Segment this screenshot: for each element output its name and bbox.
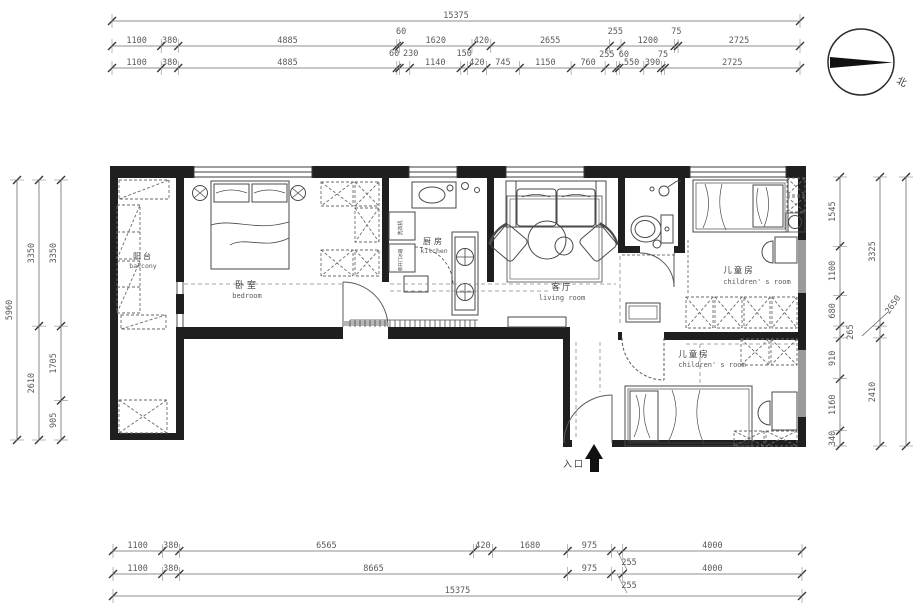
furniture-bedroom — [193, 181, 306, 269]
furniture-children-bottom — [625, 386, 797, 446]
dim-label: 420 — [474, 36, 489, 46]
dim-chain: 33502610 — [27, 176, 46, 444]
dim-label: 550 — [624, 58, 639, 68]
dim-label: 2410 — [868, 382, 878, 402]
dim-label: 3325 — [868, 241, 878, 261]
floor-plan-svg: 北 阳台 balcony 卧室 bedroom 厨房 kitchen 客厅 li… — [0, 0, 917, 610]
dim-label: 380 — [163, 541, 178, 551]
dim-label: 3350 — [49, 243, 59, 263]
furniture-bathroom — [622, 181, 681, 255]
balcony-label-en: balcony — [129, 262, 156, 270]
dim-label: 255 — [599, 50, 614, 60]
ceiling-lamp — [291, 186, 306, 201]
blanket-line — [668, 390, 704, 444]
entrance-arrow-icon — [585, 444, 603, 472]
dim-label: 4000 — [702, 541, 722, 551]
dim-label: 60 — [396, 27, 406, 37]
desk — [772, 392, 797, 430]
dim-label: 4000 — [702, 564, 722, 574]
dim-label: 1620 — [426, 36, 446, 46]
room-labels: 阳台 balcony 卧室 bedroom 厨房 kitchen 客厅 livi… — [129, 220, 790, 470]
faucet — [447, 185, 453, 191]
washer-label: 洗衣机 — [397, 220, 404, 235]
dim-label: 15375 — [445, 586, 471, 596]
sofa — [506, 181, 606, 227]
dim-label: 905 — [49, 413, 59, 428]
dim-label: 1100 — [126, 58, 146, 68]
dim-label: 760 — [580, 58, 595, 68]
dim-label: 1100 — [126, 36, 146, 46]
dim-label: 1140 — [425, 58, 445, 68]
north-compass: 北 — [828, 29, 909, 95]
dim-label: 975 — [582, 541, 597, 551]
wardrobe-box — [772, 297, 797, 328]
dim-label: 255 — [608, 27, 623, 37]
living-label-en: living room — [539, 294, 585, 302]
dim-label: 2655 — [540, 36, 560, 46]
dim-label: 1680 — [520, 541, 540, 551]
dim-label: 680 — [828, 303, 838, 318]
compass-needle — [830, 57, 893, 68]
dim-label: 380 — [162, 36, 177, 46]
windows — [194, 166, 806, 417]
dim-chain: 15375 — [109, 586, 806, 603]
chair — [758, 401, 770, 425]
bedroom-label-en: bedroom — [232, 292, 262, 300]
rug — [507, 196, 602, 282]
dim-label: 255 — [621, 581, 636, 591]
dim-label: 4885 — [277, 36, 297, 46]
living-label-zh: 客厅 — [551, 282, 572, 293]
dim-label: 910 — [828, 351, 838, 366]
children-top-label-en: children' s room — [723, 278, 790, 286]
dim-label: 8665 — [363, 564, 383, 574]
dim-label: 255 — [621, 558, 636, 568]
blanket-line — [211, 222, 289, 226]
dim-label: 380 — [163, 564, 178, 574]
shower-head — [650, 181, 681, 196]
wardrobe-box — [355, 182, 379, 206]
bedroom-label-zh: 卧室 — [235, 279, 259, 291]
wardrobe-box — [355, 250, 379, 276]
fridge-label: 单开门冰箱 — [397, 248, 404, 271]
dim-label: 60 — [389, 49, 399, 59]
dim-label: 1545 — [828, 201, 838, 221]
north-label: 北 — [894, 75, 908, 90]
doors — [343, 253, 674, 443]
hall-fixtures — [350, 303, 660, 327]
desk — [775, 237, 797, 263]
wardrobe-box — [321, 182, 353, 206]
dim-label: 1150 — [535, 58, 555, 68]
pillow — [252, 184, 287, 202]
dim-label: 3350 — [27, 243, 37, 263]
dim-label: 75 — [671, 27, 681, 37]
dim-label: 2725 — [729, 36, 749, 46]
kitchen-label-zh: 厨房 — [423, 236, 445, 246]
dim-label: 4885 — [277, 58, 297, 68]
dim-label: 340 — [828, 431, 838, 446]
dim-chain — [899, 173, 913, 450]
ceiling-lamp — [193, 186, 208, 201]
wardrobe-box — [321, 250, 353, 276]
dim-label: 1100 — [127, 564, 147, 574]
dim-chain: 5960 — [5, 176, 24, 444]
wardrobe-box — [744, 297, 770, 328]
burner — [457, 284, 474, 301]
stove-counter — [452, 232, 478, 315]
balcony-slider — [176, 282, 184, 327]
dim-label: 230 — [403, 49, 418, 59]
wardrobe-box — [355, 208, 379, 242]
wardrobe-box — [686, 297, 713, 328]
kitchen-label-en: kitchen — [420, 247, 447, 255]
balcony-label-zh: 阳台 — [133, 251, 153, 261]
entrance-label: 入口 — [563, 459, 585, 470]
entrance-door — [564, 395, 612, 443]
right-outer-leader-dim: 2650 — [862, 294, 903, 336]
dim-chain: 1100380488560230114015042074511507602556… — [108, 49, 804, 75]
toilet — [631, 215, 673, 248]
wardrobe-box — [741, 339, 769, 365]
window-bench — [508, 317, 566, 327]
dim-label: 2650 — [883, 294, 903, 317]
children-bottom-door — [622, 338, 664, 380]
dim-label: 1200 — [638, 36, 658, 46]
dim-label: 2725 — [722, 58, 742, 68]
dim-label: 975 — [582, 564, 597, 574]
dim-label: 420 — [475, 541, 490, 551]
dim-label: 1160 — [828, 395, 838, 415]
sink-basin — [419, 187, 445, 203]
dim-label: 1100 — [828, 261, 838, 281]
chair — [762, 241, 773, 263]
corridor-dashes — [184, 256, 796, 438]
bathroom-door — [640, 253, 674, 287]
wardrobe-box — [771, 339, 797, 365]
walls — [110, 166, 806, 447]
burner — [457, 249, 474, 266]
dimension-annotations: 1537511003804885601620420265525512007527… — [5, 11, 913, 603]
dim-chain: 154511006802659101160340 — [828, 173, 856, 450]
gas-meter — [462, 183, 469, 190]
dim-label: 75 — [658, 50, 668, 60]
dim-label: 15375 — [443, 11, 469, 21]
dim-label: 1100 — [127, 541, 147, 551]
furniture-balcony — [117, 180, 169, 433]
dim-label: 5960 — [5, 300, 15, 320]
wall-openings — [343, 245, 674, 448]
floor-plan-page: 北 阳台 balcony 卧室 bedroom 厨房 kitchen 客厅 li… — [0, 0, 917, 610]
children-bottom-label-zh: 儿童房 — [678, 349, 710, 360]
dim-chain: 33501705905 — [49, 176, 68, 444]
dim-label: 1705 — [49, 353, 59, 373]
blanket-line — [230, 238, 289, 245]
furniture-living — [487, 181, 620, 282]
blanket-line — [703, 184, 726, 230]
dim-label: 420 — [469, 58, 484, 68]
children-top-label-zh: 儿童房 — [723, 265, 755, 276]
single-bed — [693, 180, 788, 232]
wardrobe-box — [715, 297, 742, 328]
pillow — [214, 184, 249, 202]
children-bottom-label-en: children' s room — [678, 361, 745, 369]
dim-label: 745 — [495, 58, 510, 68]
dim-label: 265 — [846, 324, 856, 339]
dim-label: 6565 — [316, 541, 336, 551]
dim-label: 380 — [162, 58, 177, 68]
dim-label: 2610 — [27, 373, 37, 393]
dim-chain: 15375 — [108, 11, 804, 28]
door-sill — [344, 321, 387, 326]
